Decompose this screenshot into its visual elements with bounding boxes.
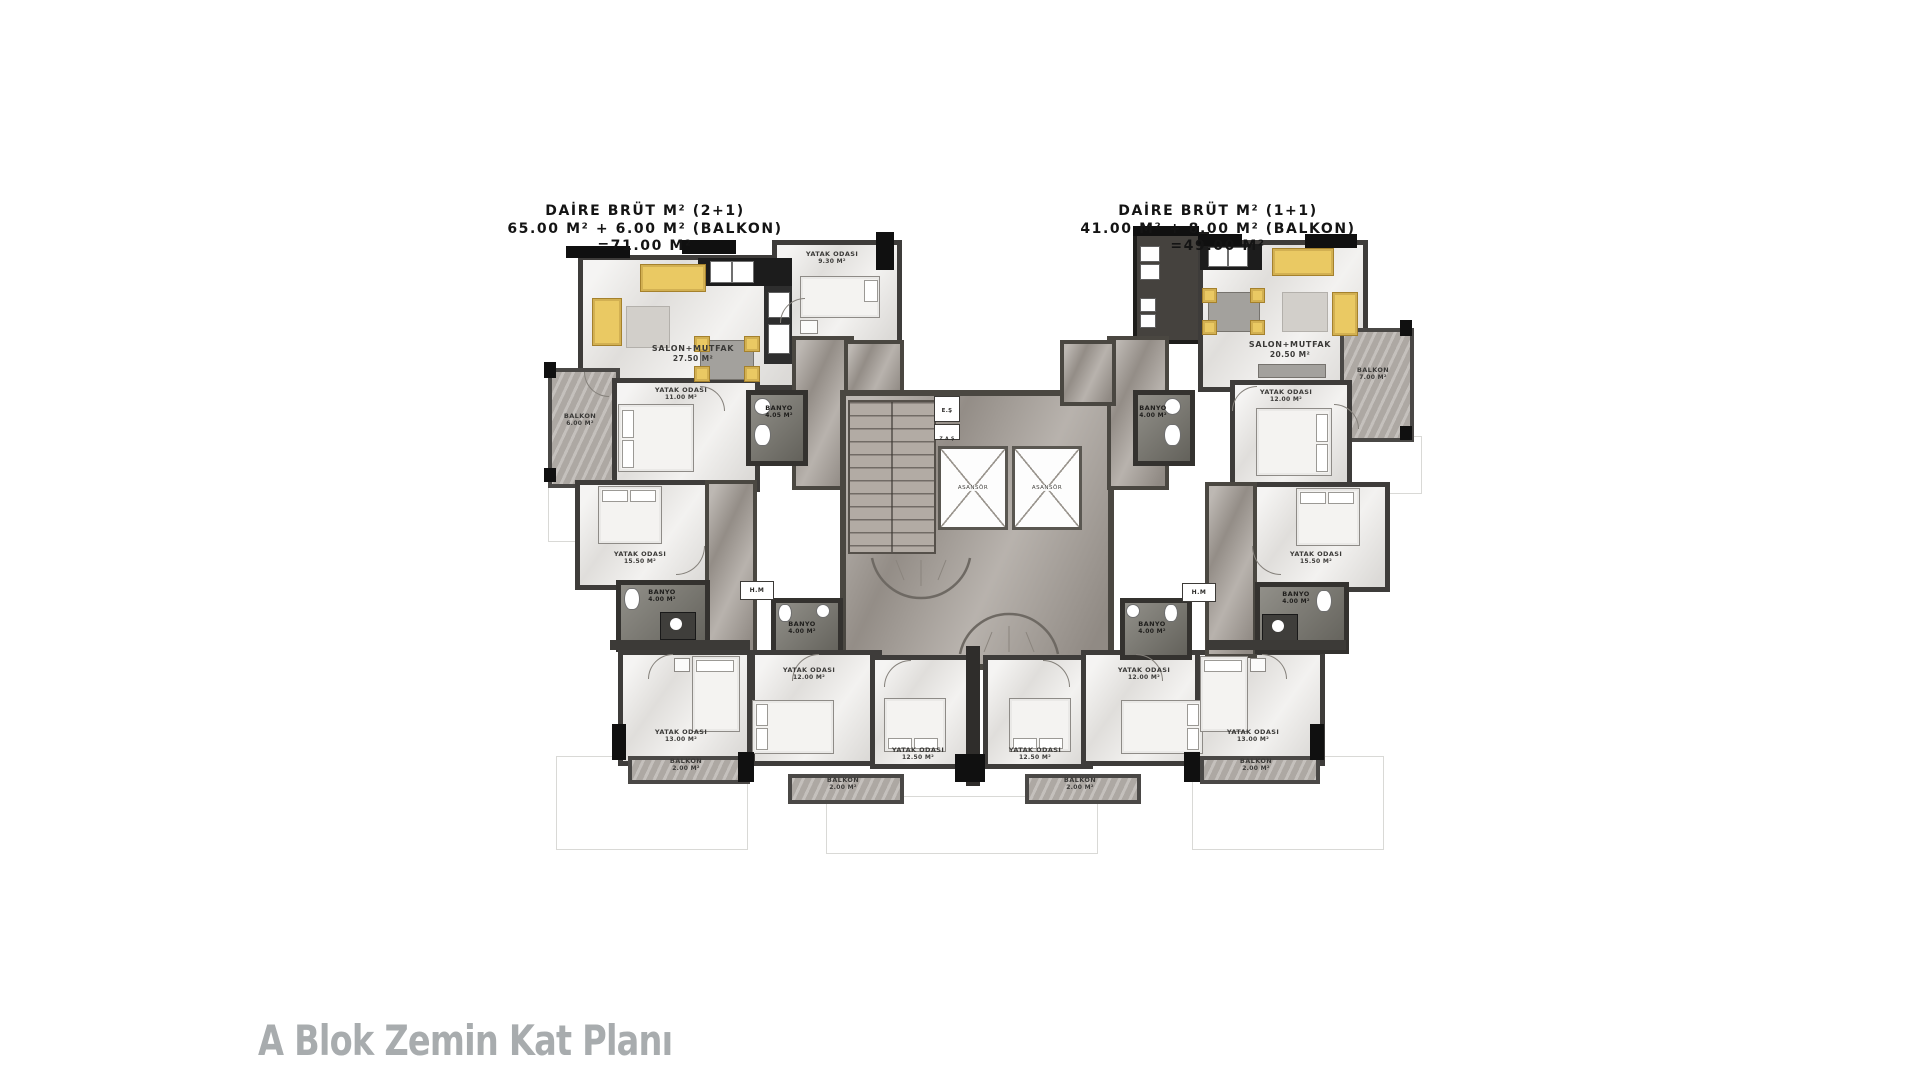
armchair [592, 298, 622, 346]
curved-stair [858, 556, 1072, 656]
closet-hm-left: H.M [740, 581, 774, 600]
wall-pier [612, 724, 626, 760]
room-label-bathroom-top-left: BANYO 4.05 M² [762, 404, 796, 420]
dining-chair [1202, 288, 1217, 303]
room-label-bedroom-12-bottom-left: YATAK ODASI 12.00 M² [766, 666, 852, 682]
room-label-bedroom-125-bottom-right: YATAK ODASI 12.50 M² [995, 746, 1075, 762]
cabinet-icon [1140, 314, 1156, 328]
room-label-balcony-center-left: BALKON 2.00 M² [802, 776, 884, 792]
room-bathroom-top-right [1133, 390, 1195, 466]
armchair [1332, 292, 1358, 336]
room-label-bedroom-15-left: YATAK ODASI 15.50 M² [590, 550, 690, 566]
terrace-outline-bottom-center [826, 796, 1098, 854]
floor-plan-canvas: DAİRE BRÜT M² (2+1) 65.00 M² + 6.00 M² (… [0, 0, 1920, 1080]
unit-title-right: DAİRE BRÜT M² (1+1) 41.00 M² + 8.00 M² (… [1028, 203, 1408, 256]
rug [626, 306, 670, 348]
room-label-bedroom-15-right: YATAK ODASI 15.50 M² [1266, 550, 1366, 566]
wall-pier [1184, 752, 1200, 782]
bed-pillow [630, 490, 656, 502]
plan-caption: A Blok Zemin Kat Planı [258, 1016, 672, 1065]
room-label-bedroom-11-left: YATAK ODASI 11.00 M² [616, 386, 746, 402]
dining-chair [1250, 288, 1265, 303]
unit-title-right-line3: =49.00 M² [1028, 238, 1408, 256]
wall-pier [1400, 426, 1412, 440]
toilet [754, 424, 771, 446]
elevator-right: ASANSÖR [1012, 446, 1082, 530]
shaft-low-current: Z.A.Ş [934, 424, 960, 440]
hall-right-lower [1205, 482, 1257, 658]
unit-title-right-line2: 41.00 M² + 8.00 M² (BALKON) [1028, 221, 1408, 239]
bed-pillow [1316, 414, 1328, 442]
dining-chair [1250, 320, 1265, 335]
cabinet-icon [1140, 298, 1156, 312]
room-label-bathroom-mid-left: BANYO 4.00 M² [634, 588, 690, 604]
sideboard [1258, 364, 1326, 378]
room-label-bedroom-12-right: YATAK ODASI 12.00 M² [1240, 388, 1332, 404]
room-label-salon-right: SALON+MUTFAK 20.50 M² [1230, 340, 1350, 360]
unit-title-right-line1: DAİRE BRÜT M² (1+1) [1028, 203, 1408, 221]
hall-right-vestibule [1060, 340, 1116, 406]
shower-head [1272, 620, 1284, 632]
bed-pillow [756, 728, 768, 750]
bed-pillow [1300, 492, 1326, 504]
closet-hm-right: H.M [1182, 583, 1216, 602]
bed-pillow [602, 490, 628, 502]
wall-pier [544, 468, 556, 482]
unit-title-left: DAİRE BRÜT M² (2+1) 65.00 M² + 6.00 M² (… [455, 203, 835, 256]
shaft-electrical: E.Ş [934, 396, 960, 422]
kitchen-sink-left [732, 261, 754, 283]
dining-chair [744, 366, 760, 382]
bed-pillow [1204, 660, 1242, 672]
room-label-balcony-left: BALKON 6.00 M² [552, 412, 608, 428]
room-label-balcony-center-right: BALKON 2.00 M² [1039, 776, 1121, 792]
bed-pillow [622, 410, 634, 438]
bed-pillow [1328, 492, 1354, 504]
unit-title-left-line2: 65.00 M² + 6.00 M² (BALKON) [455, 221, 835, 239]
dining-chair [1202, 320, 1217, 335]
room-label-bathroom-mid-right: BANYO 4.00 M² [1268, 590, 1324, 606]
elevator-left: ASANSÖR [938, 446, 1008, 530]
nightstand [674, 658, 690, 672]
wall-pier [955, 754, 985, 782]
unit-title-left-line3: =71.00 M² [455, 238, 835, 256]
sofa [640, 264, 706, 292]
bed-pillow [622, 440, 634, 468]
wall-segment [610, 640, 750, 650]
room-label-bedroom-13-left: YATAK ODASI 13.00 M² [646, 728, 716, 744]
room-label-salon-left: SALON+MUTFAK 27.50 M² [618, 344, 768, 364]
bathroom-sink [816, 604, 830, 618]
room-label-balcony-right: BALKON 7.00 M² [1346, 366, 1400, 382]
wall-segment [1206, 640, 1346, 650]
bed-pillow [696, 660, 734, 672]
staircase [848, 400, 936, 554]
bed-pillow [1187, 704, 1199, 726]
room-label-bedroom-125-bottom-left: YATAK ODASI 12.50 M² [878, 746, 958, 762]
wall-pier [738, 752, 754, 782]
shower-head [670, 618, 682, 630]
bed-pillow [1316, 444, 1328, 472]
unit-title-left-line1: DAİRE BRÜT M² (2+1) [455, 203, 835, 221]
hall-left-lower [705, 480, 757, 658]
room-label-balcony-bottom-right: BALKON 2.00 M² [1226, 757, 1286, 773]
toilet [1164, 424, 1181, 446]
room-label-bedroom-12-bottom-right: YATAK ODASI 12.00 M² [1101, 666, 1187, 682]
room-label-bedroom-13-right: YATAK ODASI 13.00 M² [1218, 728, 1288, 744]
bed-pillow [864, 280, 878, 302]
kitchen-sink-left [710, 261, 732, 283]
bed-pillow [1187, 728, 1199, 750]
room-label-bathroom-bottom-left: BANYO 4.00 M² [776, 620, 828, 636]
room-label-balcony-bottom-left: BALKON 2.00 M² [656, 757, 716, 773]
room-label-bathroom-bottom-right: BANYO 4.00 M² [1126, 620, 1178, 636]
wall-pier [544, 362, 556, 378]
dining-chair [694, 366, 710, 382]
washer-icon [1140, 264, 1160, 280]
rug [1282, 292, 1328, 332]
bed-pillow [756, 704, 768, 726]
wall-pier [1400, 320, 1412, 336]
wall-pier [1310, 724, 1324, 760]
fridge-icon [768, 324, 790, 354]
bathroom-sink [1126, 604, 1140, 618]
room-label-bathroom-top-right: BANYO 4.00 M² [1136, 404, 1170, 420]
